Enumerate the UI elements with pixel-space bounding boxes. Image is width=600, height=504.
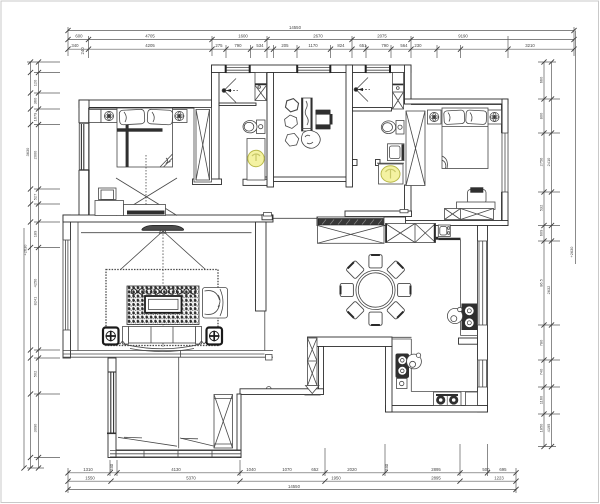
svg-text:189: 189 [33,231,38,238]
svg-text:1310: 1310 [83,467,93,472]
svg-text:695: 695 [499,467,507,472]
svg-text:2000: 2000 [33,150,38,159]
svg-text:609: 609 [539,230,544,237]
svg-text:502: 502 [33,371,38,378]
svg-text:2756: 2756 [539,158,544,167]
svg-text:740: 740 [539,368,544,375]
svg-text:2895: 2895 [431,467,441,472]
svg-text:3210: 3210 [525,43,535,48]
svg-text:8241: 8241 [33,297,38,306]
svg-text:1679: 1679 [33,113,38,122]
svg-text:120: 120 [33,79,38,86]
svg-text:340: 340 [71,43,79,48]
svg-text:1550: 1550 [85,476,95,481]
svg-text:2895: 2895 [431,476,441,481]
svg-text:651: 651 [359,43,367,48]
svg-text:790: 790 [381,43,389,48]
svg-text:790: 790 [234,43,242,48]
svg-text:532: 532 [539,205,544,212]
svg-text:230: 230 [414,43,422,48]
svg-text:2670: 2670 [313,34,323,39]
svg-text:660: 660 [539,76,544,83]
svg-text:4205: 4205 [145,43,155,48]
svg-text:2410: 2410 [546,157,551,166]
svg-text:1040: 1040 [246,467,256,472]
svg-text:600: 600 [75,34,83,39]
svg-text:564: 564 [400,43,408,48]
svg-text:+2630: +2630 [569,246,574,258]
svg-text:4705: 4705 [145,34,155,39]
svg-text:527: 527 [33,194,38,201]
svg-text:3090: 3090 [33,423,38,432]
svg-text:780: 780 [539,339,544,346]
svg-text:+2630: +2630 [23,244,28,256]
svg-text:800: 800 [539,112,544,119]
svg-text:1070: 1070 [282,467,292,472]
svg-text:1223: 1223 [494,476,504,481]
svg-text:4250: 4250 [33,278,38,287]
svg-text:14550: 14550 [289,25,302,30]
svg-text:240: 240 [109,463,114,471]
svg-text:500: 500 [482,467,490,472]
svg-text:652: 652 [311,467,319,472]
svg-text:534: 534 [256,43,264,48]
svg-text:9190: 9190 [458,34,468,39]
svg-text:14550: 14550 [288,484,301,489]
svg-text:3630: 3630 [25,147,30,156]
svg-text:275: 275 [215,43,223,48]
svg-text:1850: 1850 [539,423,544,432]
svg-text:2075: 2075 [377,34,387,39]
svg-text:5370: 5370 [186,476,196,481]
svg-text:360: 360 [33,97,38,104]
svg-text:1950: 1950 [331,476,341,481]
svg-text:205: 205 [281,43,289,48]
svg-text:1600: 1600 [238,34,248,39]
svg-text:2632: 2632 [546,286,551,295]
svg-text:1170: 1170 [308,43,318,48]
svg-text:2020: 2020 [347,467,357,472]
svg-text:1160: 1160 [539,395,544,404]
svg-text:86.5: 86.5 [539,279,544,287]
svg-text:240: 240 [384,463,389,471]
svg-text:240: 240 [80,47,85,55]
svg-text:4130: 4130 [171,467,181,472]
svg-text:4195: 4195 [546,424,551,433]
svg-text:824: 824 [337,43,345,48]
